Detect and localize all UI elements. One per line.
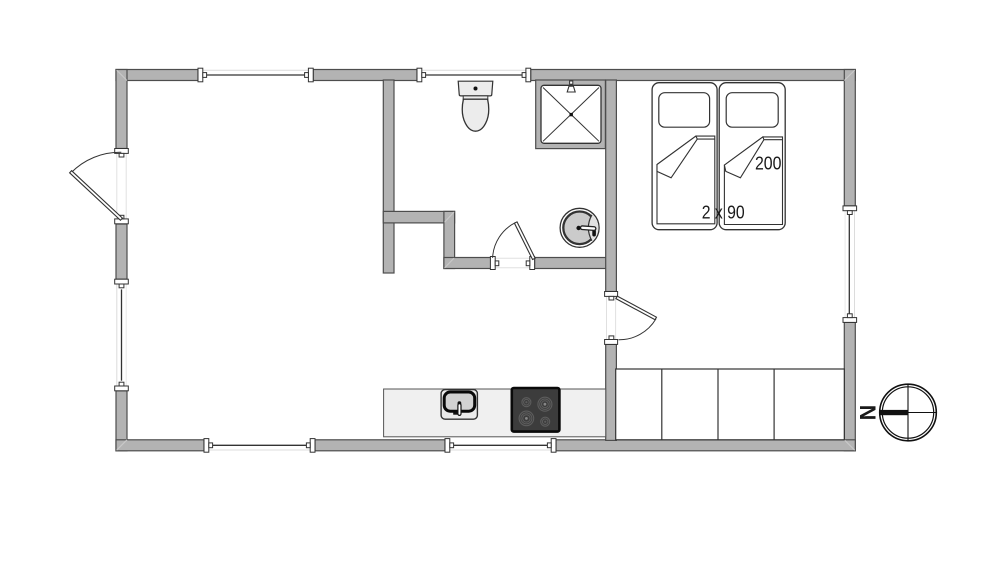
svg-text:N: N [855,405,881,420]
svg-text:2 x 90: 2 x 90 [702,202,745,222]
svg-text:200: 200 [755,153,782,173]
